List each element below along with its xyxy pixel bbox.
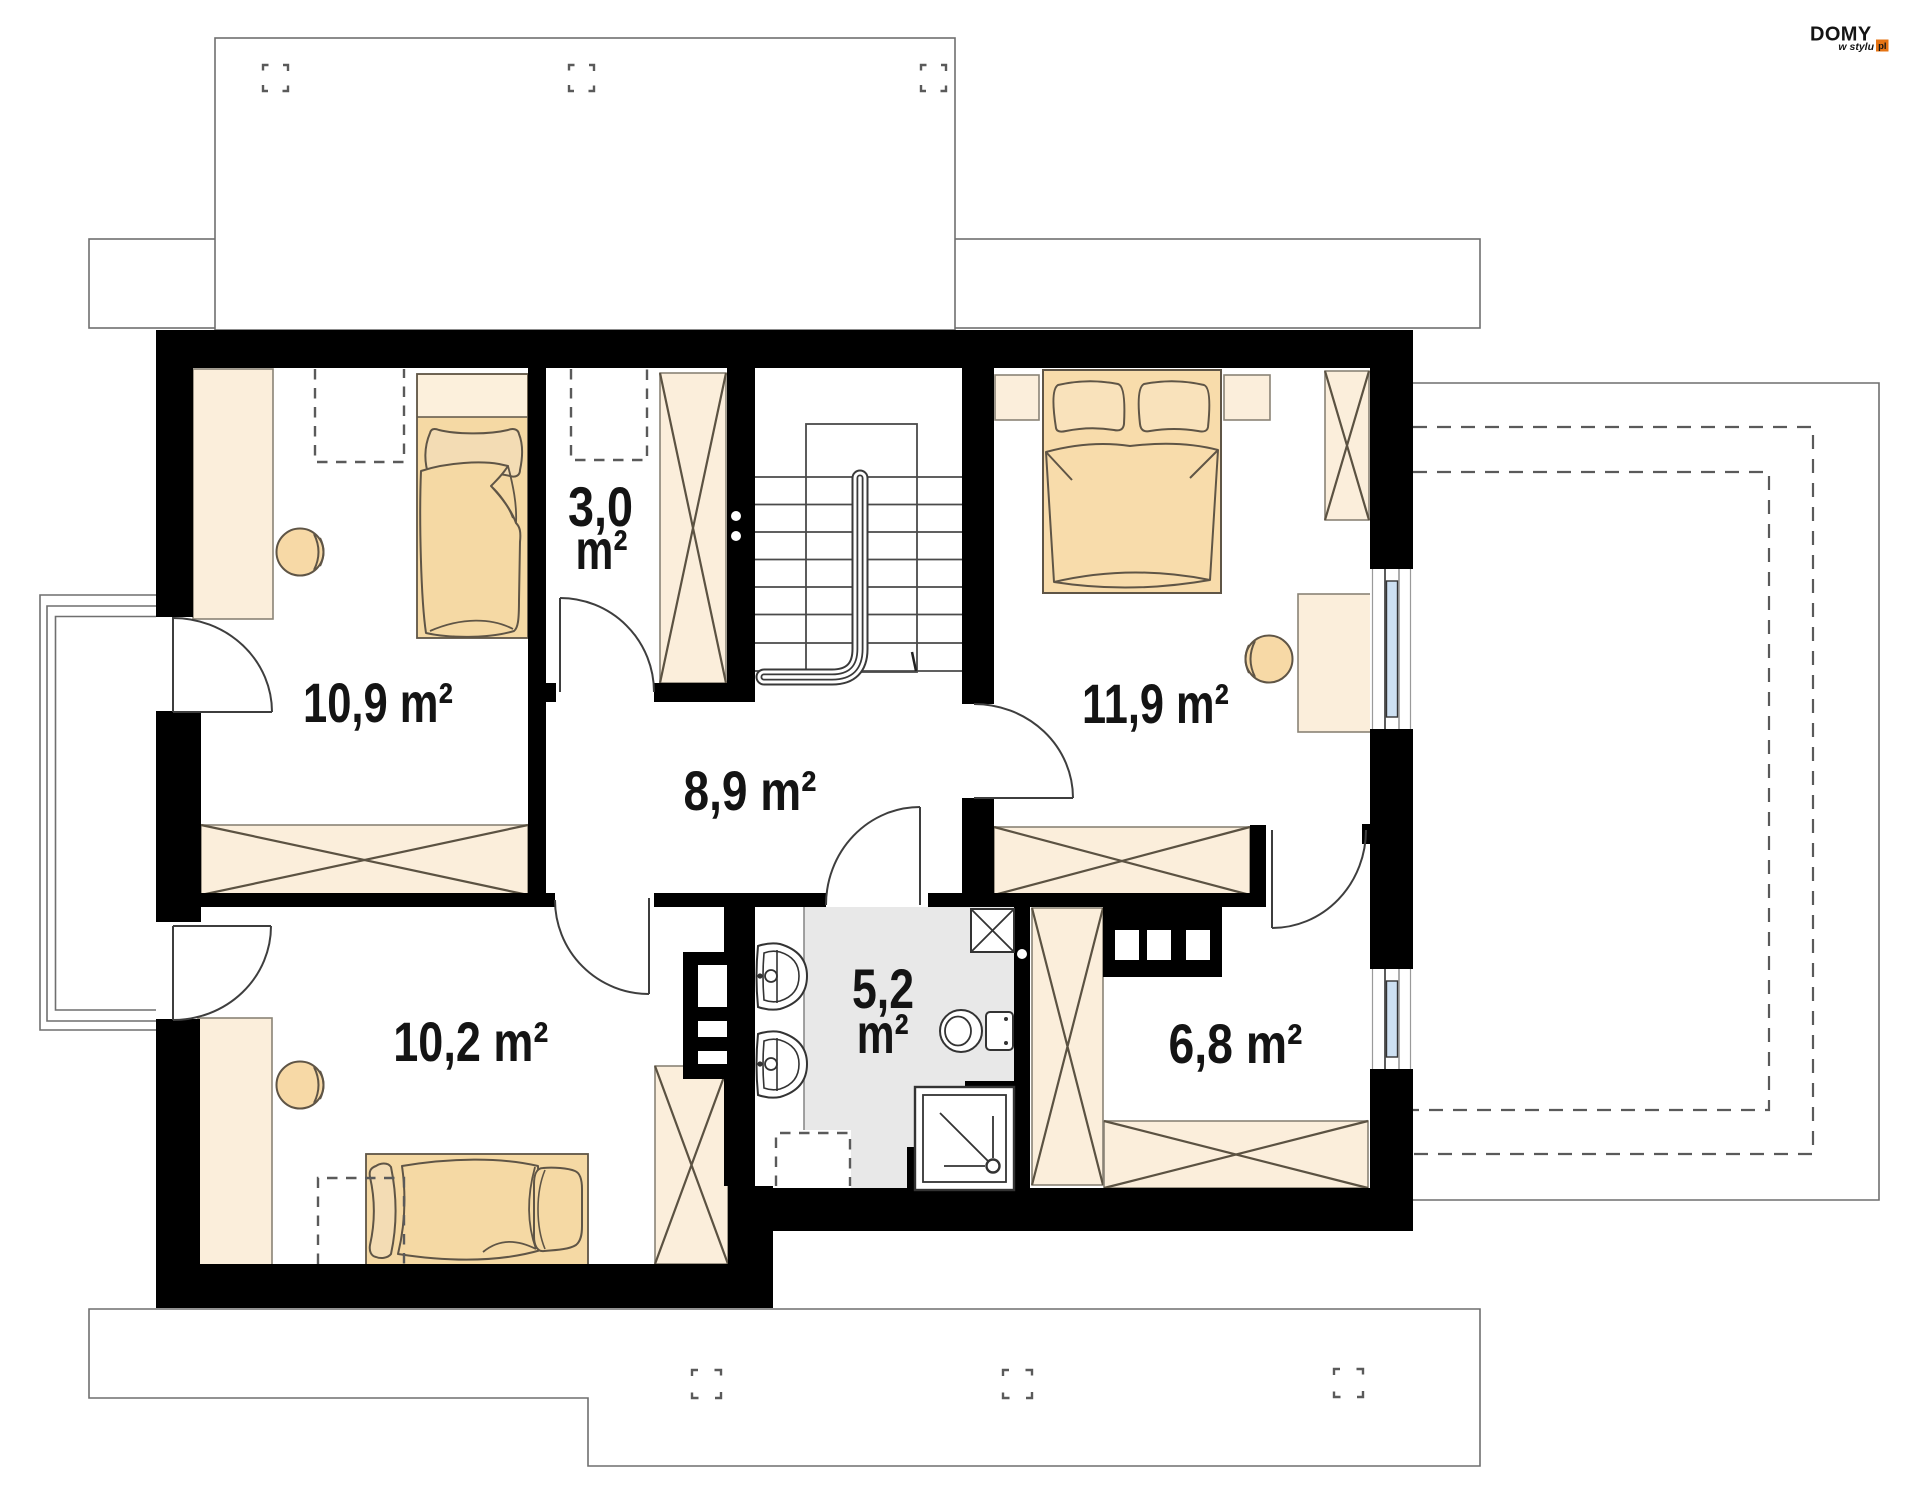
svg-text:6,8 m²: 6,8 m² bbox=[1169, 1012, 1303, 1075]
svg-text:m²: m² bbox=[857, 1002, 909, 1065]
svg-text:10,9 m²: 10,9 m² bbox=[303, 671, 453, 734]
svg-text:11,9 m²: 11,9 m² bbox=[1082, 672, 1229, 735]
svg-text:10,2 m²: 10,2 m² bbox=[393, 1010, 548, 1073]
svg-text:8,9 m²: 8,9 m² bbox=[684, 759, 817, 822]
svg-text:pl: pl bbox=[1878, 41, 1886, 52]
svg-text:w stylu: w stylu bbox=[1838, 41, 1874, 53]
svg-text:m²: m² bbox=[576, 518, 628, 581]
